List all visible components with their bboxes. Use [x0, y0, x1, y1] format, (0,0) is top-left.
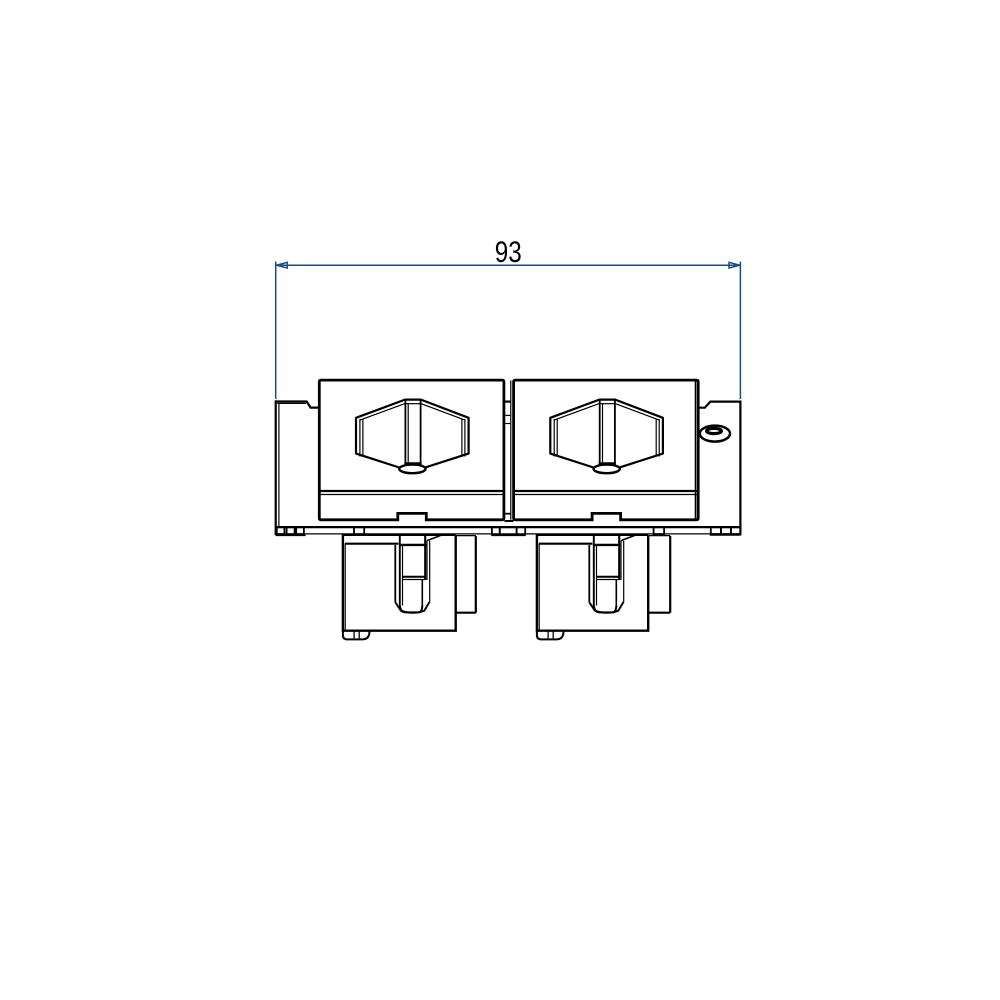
svg-text:93: 93: [495, 236, 522, 269]
